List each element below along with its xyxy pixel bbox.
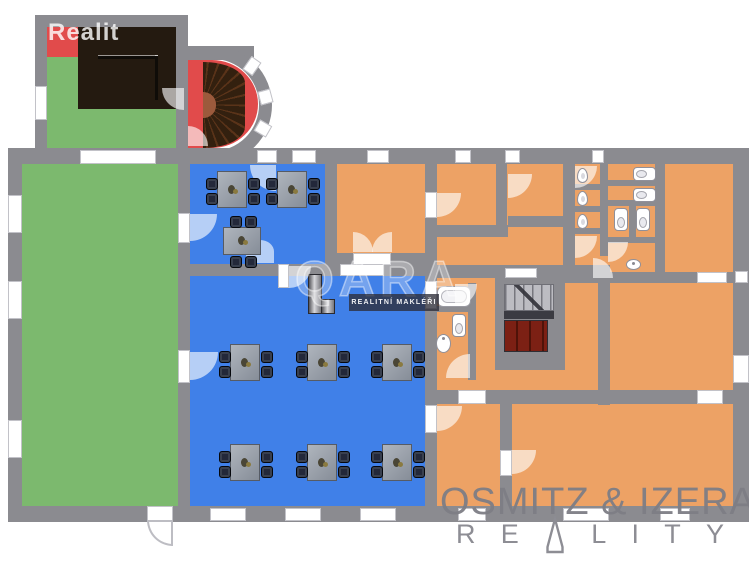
dining-table	[307, 344, 337, 381]
chair	[261, 351, 273, 363]
toilet-icon	[633, 167, 656, 181]
sink-icon	[436, 334, 451, 353]
window	[257, 150, 277, 163]
chair	[338, 451, 350, 463]
door-arc	[147, 520, 173, 546]
chair	[338, 466, 350, 478]
dining-table	[307, 444, 337, 481]
chair	[266, 178, 278, 190]
window	[500, 450, 512, 476]
door-arc	[512, 450, 536, 474]
chair	[248, 178, 260, 190]
window	[505, 150, 520, 163]
chair	[413, 451, 425, 463]
toilet-icon	[452, 314, 466, 337]
window	[8, 281, 22, 319]
floor-plan-image: Realit QARA REALITNÍ MAKLÉŘI OSMITZ & IZ…	[0, 0, 749, 562]
reality-letter: I	[631, 519, 639, 550]
window	[8, 420, 22, 458]
window	[292, 150, 316, 163]
dining-table	[230, 344, 260, 381]
window	[697, 390, 723, 404]
urinal-icon	[577, 214, 588, 229]
chair	[413, 366, 425, 378]
door-arc	[162, 88, 184, 110]
window	[735, 271, 748, 283]
chair	[371, 366, 383, 378]
window	[257, 89, 273, 106]
window	[8, 195, 22, 233]
window	[592, 150, 604, 163]
chair	[338, 351, 350, 363]
window	[425, 405, 437, 433]
reality-letter: Y	[706, 519, 724, 550]
window	[505, 268, 537, 278]
window	[278, 264, 289, 288]
dining-table	[277, 171, 307, 208]
dining-table	[230, 444, 260, 481]
logo-osmitz-izera: OSMITZ & IZERA	[440, 481, 749, 524]
chair	[206, 178, 218, 190]
urinal-icon	[577, 168, 588, 183]
window	[425, 192, 437, 218]
chair	[261, 451, 273, 463]
door-arc	[508, 174, 532, 198]
window	[697, 272, 727, 283]
window	[210, 508, 246, 521]
chair	[413, 466, 425, 478]
chair	[371, 351, 383, 363]
chair	[261, 366, 273, 378]
window	[178, 350, 190, 383]
chair	[338, 366, 350, 378]
chair	[230, 256, 242, 268]
chair	[296, 366, 308, 378]
urinal-icon	[577, 191, 588, 206]
door-arc	[190, 214, 217, 241]
chair	[308, 193, 320, 205]
window	[178, 213, 190, 243]
chair	[219, 466, 231, 478]
dining-table	[217, 171, 247, 208]
chair	[219, 451, 231, 463]
chair	[219, 351, 231, 363]
dining-table	[223, 227, 261, 255]
window	[733, 355, 749, 383]
door-arc	[608, 242, 628, 262]
door-arc	[190, 352, 218, 380]
door-arc	[188, 126, 208, 146]
window	[360, 508, 396, 521]
dining-table	[382, 444, 412, 481]
toilet-icon	[614, 208, 628, 231]
window	[254, 119, 273, 137]
watermark-qara-tagline: REALITNÍ MAKLÉŘI	[349, 294, 439, 311]
reality-letter: T	[664, 519, 681, 550]
window	[242, 56, 261, 76]
chair	[245, 216, 257, 228]
chair	[248, 193, 260, 205]
toilet-icon	[636, 208, 650, 231]
chair	[371, 466, 383, 478]
door-arc	[437, 193, 461, 217]
reality-letter: L	[591, 519, 606, 550]
door-arc	[353, 232, 373, 252]
window	[285, 508, 321, 521]
window	[458, 390, 486, 404]
chair	[219, 366, 231, 378]
chair	[296, 466, 308, 478]
window	[367, 150, 389, 163]
chair	[296, 451, 308, 463]
door-arc	[372, 232, 392, 252]
window	[455, 150, 471, 163]
door-arc	[437, 406, 462, 431]
watermark-realit: Realit	[48, 19, 119, 47]
door-arc	[575, 236, 597, 258]
logo-reality: R E L I T Y	[456, 519, 724, 554]
chair	[230, 216, 242, 228]
chair	[371, 451, 383, 463]
window	[80, 150, 156, 164]
chair	[296, 351, 308, 363]
toilet-icon	[633, 188, 656, 202]
chair	[206, 193, 218, 205]
window	[35, 86, 47, 120]
chair	[245, 256, 257, 268]
chair	[413, 351, 425, 363]
reality-letter: R	[456, 519, 476, 550]
pylon-a-icon	[544, 516, 566, 554]
chair	[308, 178, 320, 190]
dining-table	[382, 344, 412, 381]
door-arc	[446, 354, 470, 378]
chair	[266, 193, 278, 205]
sink-icon	[626, 259, 641, 270]
chair	[261, 466, 273, 478]
reality-letter: E	[501, 519, 519, 550]
